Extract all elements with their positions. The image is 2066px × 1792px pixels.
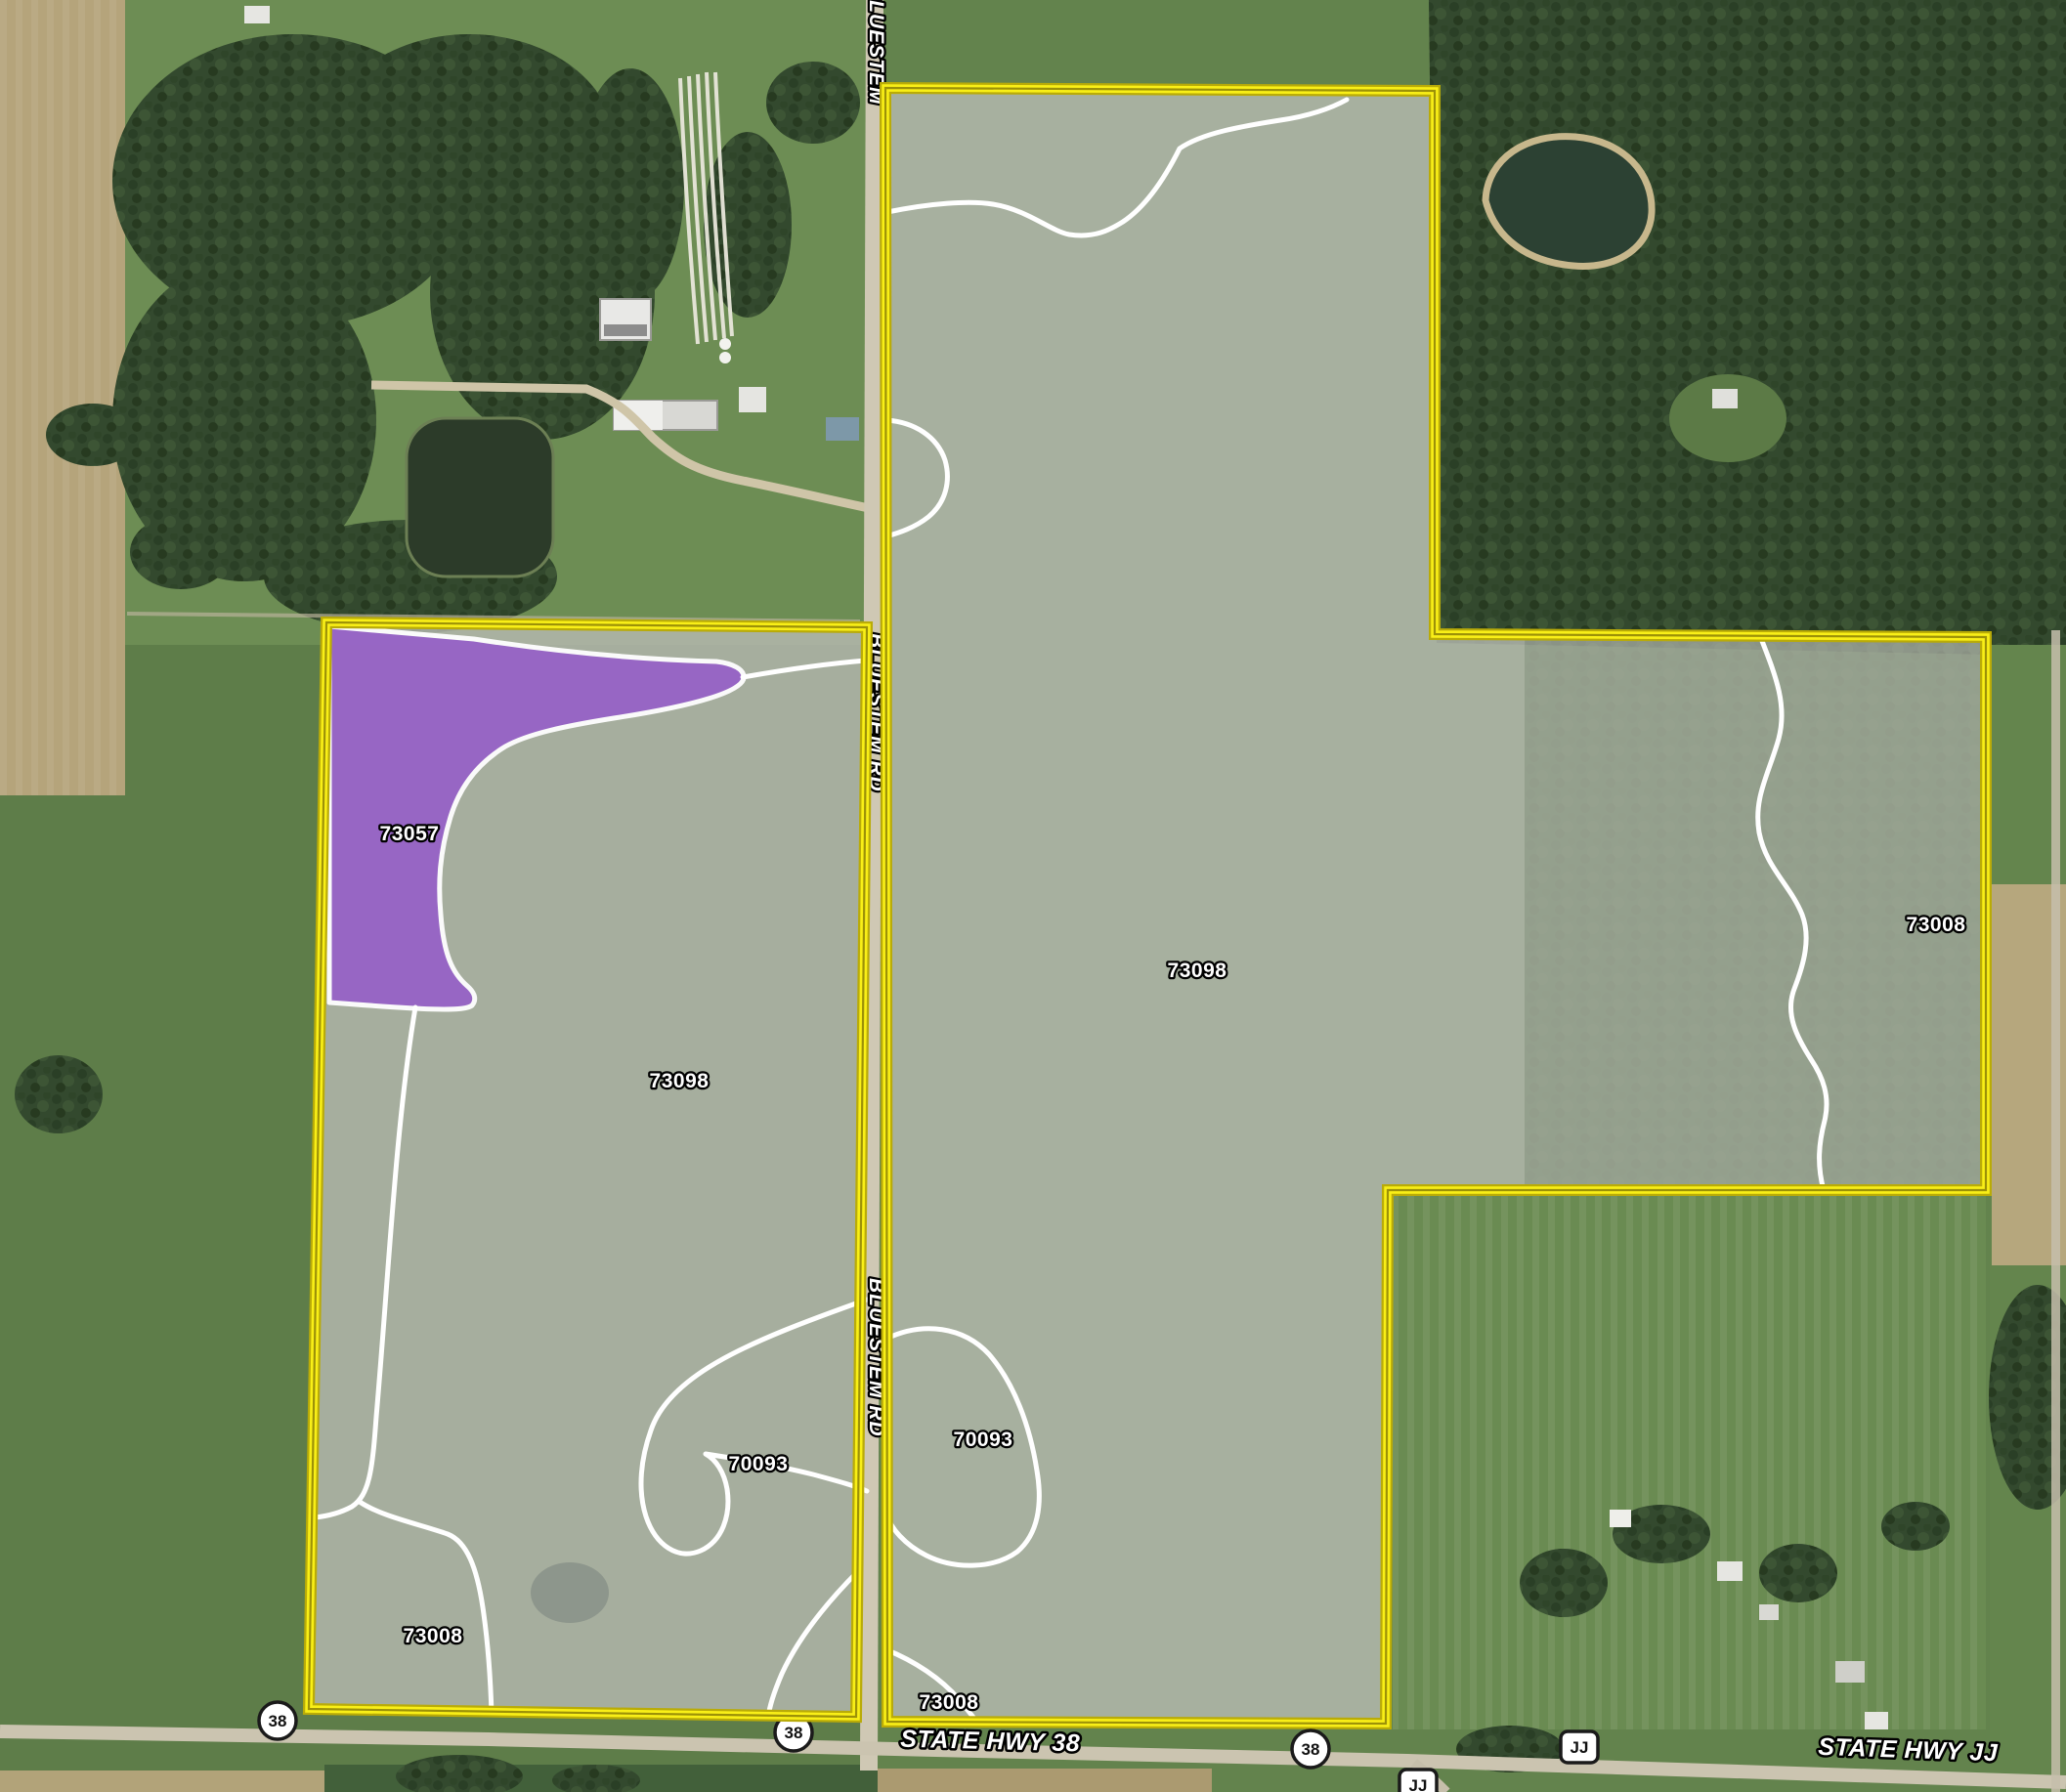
route-shield-38-right-label: 38 <box>1302 1740 1320 1759</box>
route-shield-jj-south-label: JJ <box>1409 1776 1428 1792</box>
forest-top-right <box>1429 0 2066 695</box>
soil-label-73008-bottom-center: 73008 <box>920 1691 979 1714</box>
road-label-state-hwy-38: STATE HWY 38 <box>900 1726 1080 1758</box>
soil-label-73008-bottom-left: 73008 <box>404 1625 463 1647</box>
soil-label-73057: 73057 <box>380 823 440 845</box>
tan-field-bottom-mid <box>878 1769 1212 1792</box>
building-in-forest <box>1712 389 1738 408</box>
tan-field-bottom-left <box>0 1771 324 1792</box>
route-shield-jj-south: JJ <box>1399 1770 1437 1792</box>
building-top-left <box>244 6 270 23</box>
tan-field-left-rows <box>0 0 125 795</box>
farm-pond <box>407 418 553 576</box>
soil-label-70093-left: 70093 <box>729 1453 789 1475</box>
field-bottom-right-rows <box>1393 1194 1986 1729</box>
route-shield-38-left-label: 38 <box>269 1712 287 1730</box>
soil-label-73008-right: 73008 <box>1907 914 1966 936</box>
far-right-road <box>2051 630 2060 1792</box>
route-shield-jj-east: JJ <box>1561 1731 1598 1763</box>
soil-label-73098-left: 73098 <box>650 1070 710 1092</box>
route-shield-jj-east-label: JJ <box>1571 1738 1589 1757</box>
map-canvas[interactable]: BLUESTEM BLUESTEM RD BLUESTEM RD 38 38 3… <box>0 0 2066 1792</box>
route-shield-38-left: 38 <box>259 1702 296 1739</box>
soil-label-73098-center: 73098 <box>1168 960 1227 982</box>
pond-in-parcel <box>531 1562 609 1623</box>
route-shield-38-right: 38 <box>1292 1730 1329 1768</box>
soil-label-70093-right: 70093 <box>954 1429 1013 1451</box>
route-shield-38-mid-label: 38 <box>785 1724 803 1742</box>
forest-clearing <box>1669 374 1786 462</box>
